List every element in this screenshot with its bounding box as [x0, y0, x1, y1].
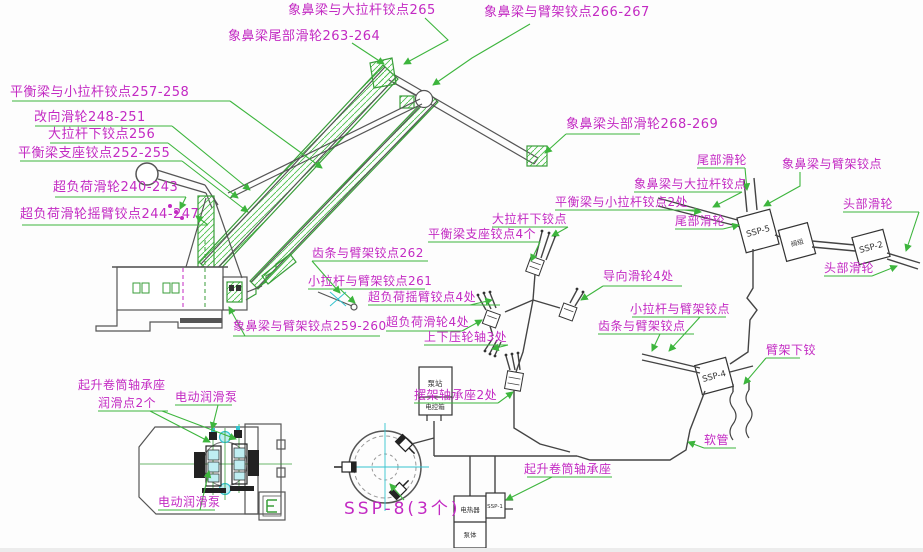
label-drum-bearing-right: 起升卷筒轴承座 [524, 463, 612, 476]
label-jaw-tail-263-264: 象鼻梁尾部滑轮263-264 [228, 30, 380, 44]
lubrication-diagram: SSP-5 阀组 SSP-2 SSP-4 [0, 0, 923, 552]
label-overload-240-243: 超负荷滑轮240-243 [53, 181, 178, 195]
heater-box-label: 电热器 [460, 505, 480, 514]
label-head-sheave-b: 头部滑轮 [824, 262, 874, 275]
label-drum-bearing-left: 起升卷筒轴承座 [78, 379, 166, 392]
label-head-sheave-a: 头部滑轮 [843, 198, 893, 211]
label-overload-arm-244-247: 超负荷滑轮摇臂铰点244-247 [20, 208, 199, 222]
label-motor-pump-b: 电动润滑泵 [158, 496, 221, 509]
label-boom-lower-hinge: 臂架下铰 [766, 344, 816, 357]
label-smalltie-boom-261: 小拉杆与臂架铰点261 [308, 275, 432, 288]
label-jaw-bigtie-265: 象鼻梁与大拉杆铰点265 [288, 4, 436, 18]
pump-body-box-label: 泵体 [464, 530, 478, 539]
label-hose: 软管 [704, 434, 729, 447]
label-bal-support-4: 平衡梁支座铰点4个 [428, 228, 536, 241]
label-jaw-head-268-269: 象鼻梁头部滑轮268-269 [566, 118, 718, 132]
hose-line-b [746, 390, 752, 438]
label-jaw-boom-266-267: 象鼻梁与臂架铰点266-267 [484, 6, 650, 20]
label-updown-roller-3: 上下压轮轴3处 [424, 331, 507, 344]
label-bal-support-252-255: 平衡梁支座铰点252-255 [18, 147, 170, 161]
label-bal-smalltie-2: 平衡梁与小拉杆铰点2处 [555, 196, 688, 209]
label-guide-4: 导向滑轮4处 [603, 270, 674, 283]
label-rack-boom-262: 齿条与臂架铰点262 [312, 247, 424, 260]
label-jaw-bigtie: 象鼻梁与大拉杆铰点 [634, 178, 747, 191]
label-bigtie-lower: 大拉杆下铰点 [492, 213, 567, 226]
label-bal-smalltie-257-258: 平衡梁与小拉杆铰点257-258 [10, 86, 189, 100]
label-rack-boom: 齿条与臂架铰点 [598, 320, 686, 333]
label-ssp8-caption: SSP-8(3个) [344, 500, 461, 519]
ssp8-reservoir [334, 423, 429, 511]
label-motor-pump-a: 电动润滑泵 [175, 391, 238, 404]
pump-station-box-label: 泵站 [428, 378, 443, 388]
label-overload-4: 超负荷滑轮4处 [386, 316, 469, 329]
label-tail-sheave-b: 尾部滑轮 [675, 215, 725, 228]
hose-line-a [730, 392, 736, 440]
label-jaw-boom: 象鼻梁与臂架铰点 [782, 158, 882, 171]
bottom-edge-strip [0, 548, 923, 552]
label-divert-248-251: 改向滑轮248-251 [34, 111, 146, 125]
label-lube-points-2: 润滑点2个 [98, 397, 156, 410]
label-jaw-boom-259-260: 象鼻梁与臂架铰点259-260 [233, 320, 387, 333]
label-bigtie-lower-256: 大拉杆下铰点256 [48, 128, 155, 142]
label-overload-arm-4: 超负荷摇臂铰点4处 [368, 291, 476, 304]
ssp1-box-label: SSP-1 [487, 504, 503, 510]
label-tail-sheave-a: 尾部滑轮 [697, 154, 747, 167]
diagram-canvas: SSP-5 阀组 SSP-2 SSP-4 [0, 0, 923, 552]
label-rocker-bearing-2: 摆架轴承座2处 [414, 389, 497, 402]
label-smalltie-boom: 小拉杆与臂架铰点 [630, 303, 730, 316]
